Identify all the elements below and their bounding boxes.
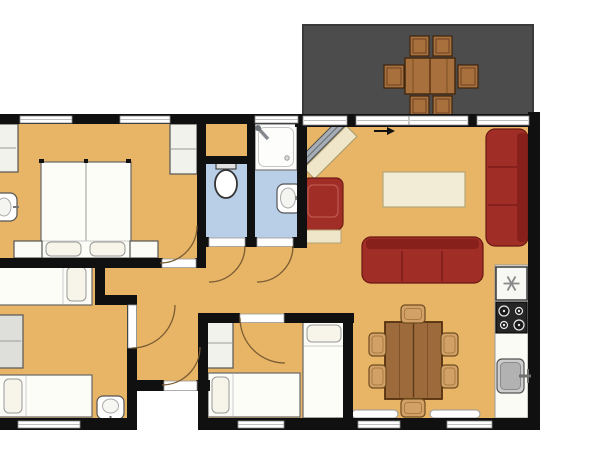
door-opening-wc	[209, 238, 245, 247]
bed-corner-mark	[84, 159, 88, 163]
bedroom1-pillow	[90, 242, 125, 256]
coffee-table	[383, 172, 465, 207]
door-opening-bedroom1	[162, 259, 196, 268]
wall-bath-bottom	[197, 237, 209, 247]
wall-bedroom3-left	[198, 313, 208, 430]
toilet-bowl	[215, 170, 237, 198]
wall-entry	[196, 380, 210, 391]
stove-burner-dot	[503, 324, 505, 326]
floor-plan	[0, 0, 600, 450]
wall-bedroom1-bottom	[0, 258, 163, 268]
wall-bathroom-right	[297, 114, 307, 248]
wall-entry	[127, 380, 164, 391]
armchair	[303, 178, 343, 230]
bedroom2-pillow	[4, 379, 22, 413]
floor-plan-svg	[0, 0, 600, 450]
door-opening-entrance	[164, 381, 197, 391]
bedroom2-washbasin-bowl	[103, 399, 119, 413]
armchair-ottoman	[306, 230, 341, 243]
door-opening-bedroom3	[240, 314, 284, 323]
bedroom2-pillow	[67, 267, 86, 301]
bathroom-washbasin-bowl	[281, 188, 296, 208]
bedroom1-nightstand	[130, 241, 158, 258]
bedroom3-pillow	[212, 377, 229, 413]
shower-drain	[285, 156, 289, 160]
stove-burner-dot	[518, 324, 520, 326]
radiator	[352, 410, 398, 418]
wall-bedroom1-bottom	[195, 258, 206, 268]
wall-duct-bottom	[197, 156, 255, 164]
wall-bath-bottom	[292, 237, 307, 248]
kitchen-sink-basin	[501, 363, 521, 390]
door-opening-bedroom2	[128, 305, 137, 348]
stove-burner-dot	[503, 310, 505, 312]
radiator	[430, 410, 480, 418]
vestibule-floor	[130, 295, 205, 390]
wall-bath-bottom	[245, 237, 257, 247]
bedroom1-pillow	[46, 242, 81, 256]
bedroom3-pillow	[307, 325, 341, 342]
wall-living-right	[528, 112, 540, 430]
shower-head	[255, 125, 261, 131]
bedroom1-washbasin-bowl	[0, 198, 11, 216]
bed-corner-mark	[39, 159, 44, 163]
sofa-vertical-back	[517, 133, 527, 242]
wall-bedroom3-right	[343, 313, 353, 430]
sofa-horizontal-back	[366, 239, 479, 249]
stove-burner-dot	[518, 310, 520, 312]
wall-wc-shower	[247, 114, 255, 245]
door-opening-bathroom	[257, 238, 293, 247]
bedroom1-nightstand	[14, 241, 42, 258]
bed-corner-mark	[126, 159, 131, 163]
